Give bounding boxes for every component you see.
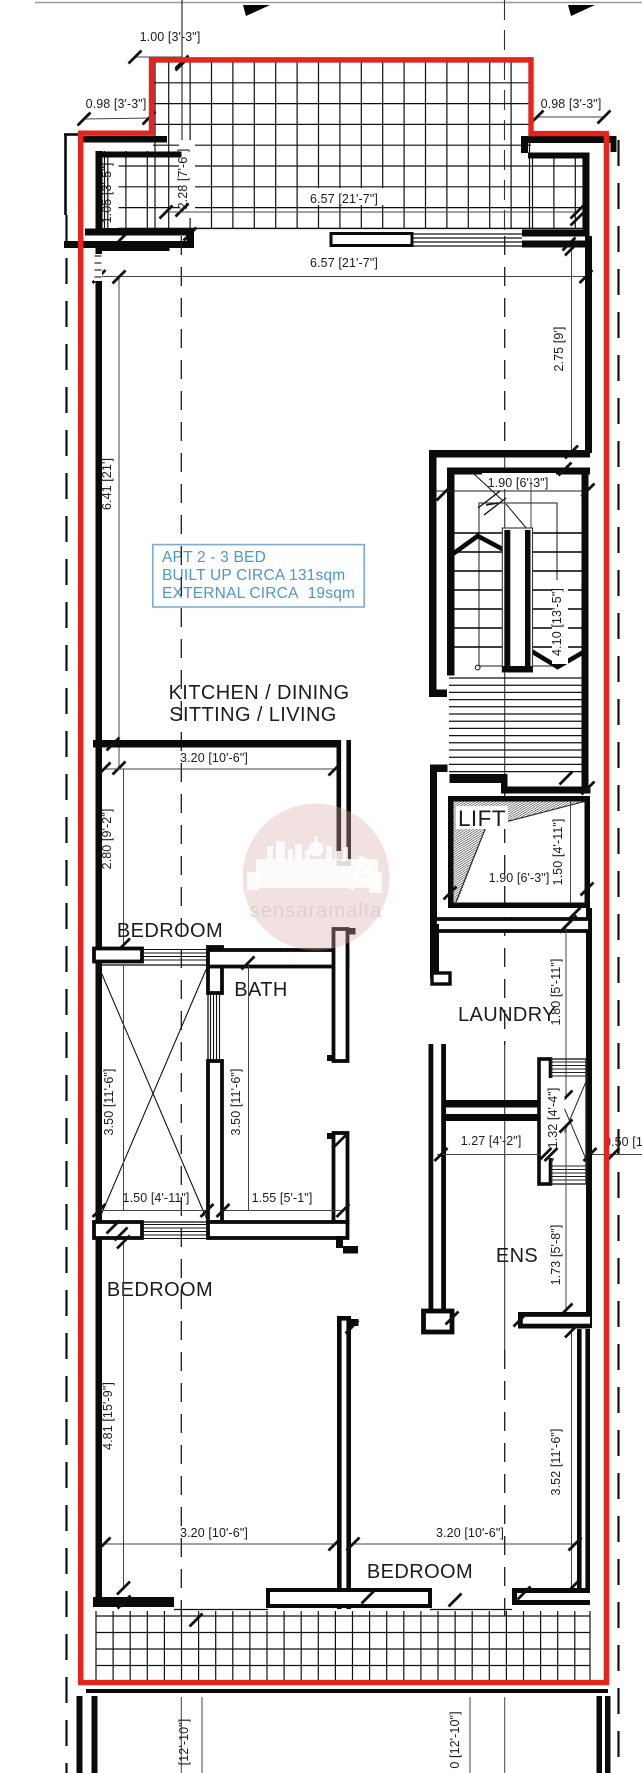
svg-text:1.00 [3'-3"]: 1.00 [3'-3"] bbox=[140, 30, 201, 44]
svg-text:1.80 [5'-11"]: 1.80 [5'-11"] bbox=[549, 959, 563, 1026]
svg-text:2.28 [7'-6"]: 2.28 [7'-6"] bbox=[176, 149, 190, 210]
svg-text:2.80 [9'-2"]: 2.80 [9'-2"] bbox=[100, 809, 114, 870]
svg-text:LAUNDRY: LAUNDRY bbox=[458, 1004, 556, 1026]
svg-text:1.73 [5'-8"]: 1.73 [5'-8"] bbox=[549, 1225, 563, 1286]
svg-text:3.52 [11'-6"]: 3.52 [11'-6"] bbox=[549, 1429, 563, 1496]
svg-text:sensaramalta: sensaramalta bbox=[250, 899, 383, 922]
svg-text:APT 2 - 3 BED: APT 2 - 3 BED bbox=[162, 549, 266, 566]
svg-text:3.50 [11'-6"]: 3.50 [11'-6"] bbox=[229, 1069, 243, 1136]
svg-text:1.27 [4'-2"]: 1.27 [4'-2"] bbox=[461, 1134, 522, 1148]
svg-text:1.90 [6'-3"]: 1.90 [6'-3"] bbox=[489, 871, 550, 885]
svg-text:1.90 [6'-3"]: 1.90 [6'-3"] bbox=[488, 476, 549, 490]
svg-text:0.98 [3'-3"]: 0.98 [3'-3"] bbox=[86, 97, 147, 111]
svg-text:6.41 [21']: 6.41 [21'] bbox=[100, 458, 114, 510]
svg-text:4.10 [13'-5"]: 4.10 [13'-5"] bbox=[550, 588, 564, 656]
svg-text:BEDROOM: BEDROOM bbox=[107, 1279, 213, 1301]
svg-text:ENS: ENS bbox=[496, 1245, 538, 1267]
svg-text:SITTING / LIVING: SITTING / LIVING bbox=[169, 704, 337, 726]
svg-text:BEDROOM: BEDROOM bbox=[367, 1561, 473, 1583]
svg-text:[12'-10"]: [12'-10"] bbox=[177, 1719, 191, 1766]
svg-text:6.57 [21'-7"]: 6.57 [21'-7"] bbox=[310, 192, 378, 206]
svg-text:KITCHEN / DINING: KITCHEN / DINING bbox=[169, 682, 350, 704]
svg-text:1.50 [4'-11"]: 1.50 [4'-11"] bbox=[123, 1191, 190, 1205]
svg-text:4.81 [15'-9"]: 4.81 [15'-9"] bbox=[101, 1382, 115, 1450]
svg-text:1.55 [5'-1"]: 1.55 [5'-1"] bbox=[252, 1191, 313, 1205]
svg-text:1.50 [4'-11"]: 1.50 [4'-11"] bbox=[551, 819, 565, 886]
svg-text:EXTERNAL CIRCA 19sqm: EXTERNAL CIRCA 19sqm bbox=[162, 585, 355, 602]
svg-text:6.57 [21'-7"]: 6.57 [21'-7"] bbox=[310, 256, 378, 270]
svg-text:BATH: BATH bbox=[234, 979, 287, 1001]
svg-text:2.75 [9']: 2.75 [9'] bbox=[552, 327, 566, 372]
svg-text:LIFT: LIFT bbox=[458, 806, 506, 831]
svg-text:0.50 [1': 0.50 [1' bbox=[604, 1135, 642, 1149]
svg-text:0.98 [3'-3"]: 0.98 [3'-3"] bbox=[541, 97, 602, 111]
svg-text:3.20 [10'-6"]: 3.20 [10'-6"] bbox=[180, 751, 248, 765]
svg-text:1.32 [4'-4"]: 1.32 [4'-4"] bbox=[546, 1088, 560, 1149]
svg-text:0 [12'-10"]: 0 [12'-10"] bbox=[448, 1711, 462, 1768]
svg-text:3.50 [11'-6"]: 3.50 [11'-6"] bbox=[102, 1069, 116, 1136]
svg-text:3.20 [10'-6"]: 3.20 [10'-6"] bbox=[436, 1526, 504, 1540]
svg-text:3.20 [10'-6"]: 3.20 [10'-6"] bbox=[180, 1526, 248, 1540]
svg-text:BUILT UP CIRCA 131sqm: BUILT UP CIRCA 131sqm bbox=[162, 567, 345, 584]
svg-text:BEDROOM: BEDROOM bbox=[117, 920, 223, 942]
